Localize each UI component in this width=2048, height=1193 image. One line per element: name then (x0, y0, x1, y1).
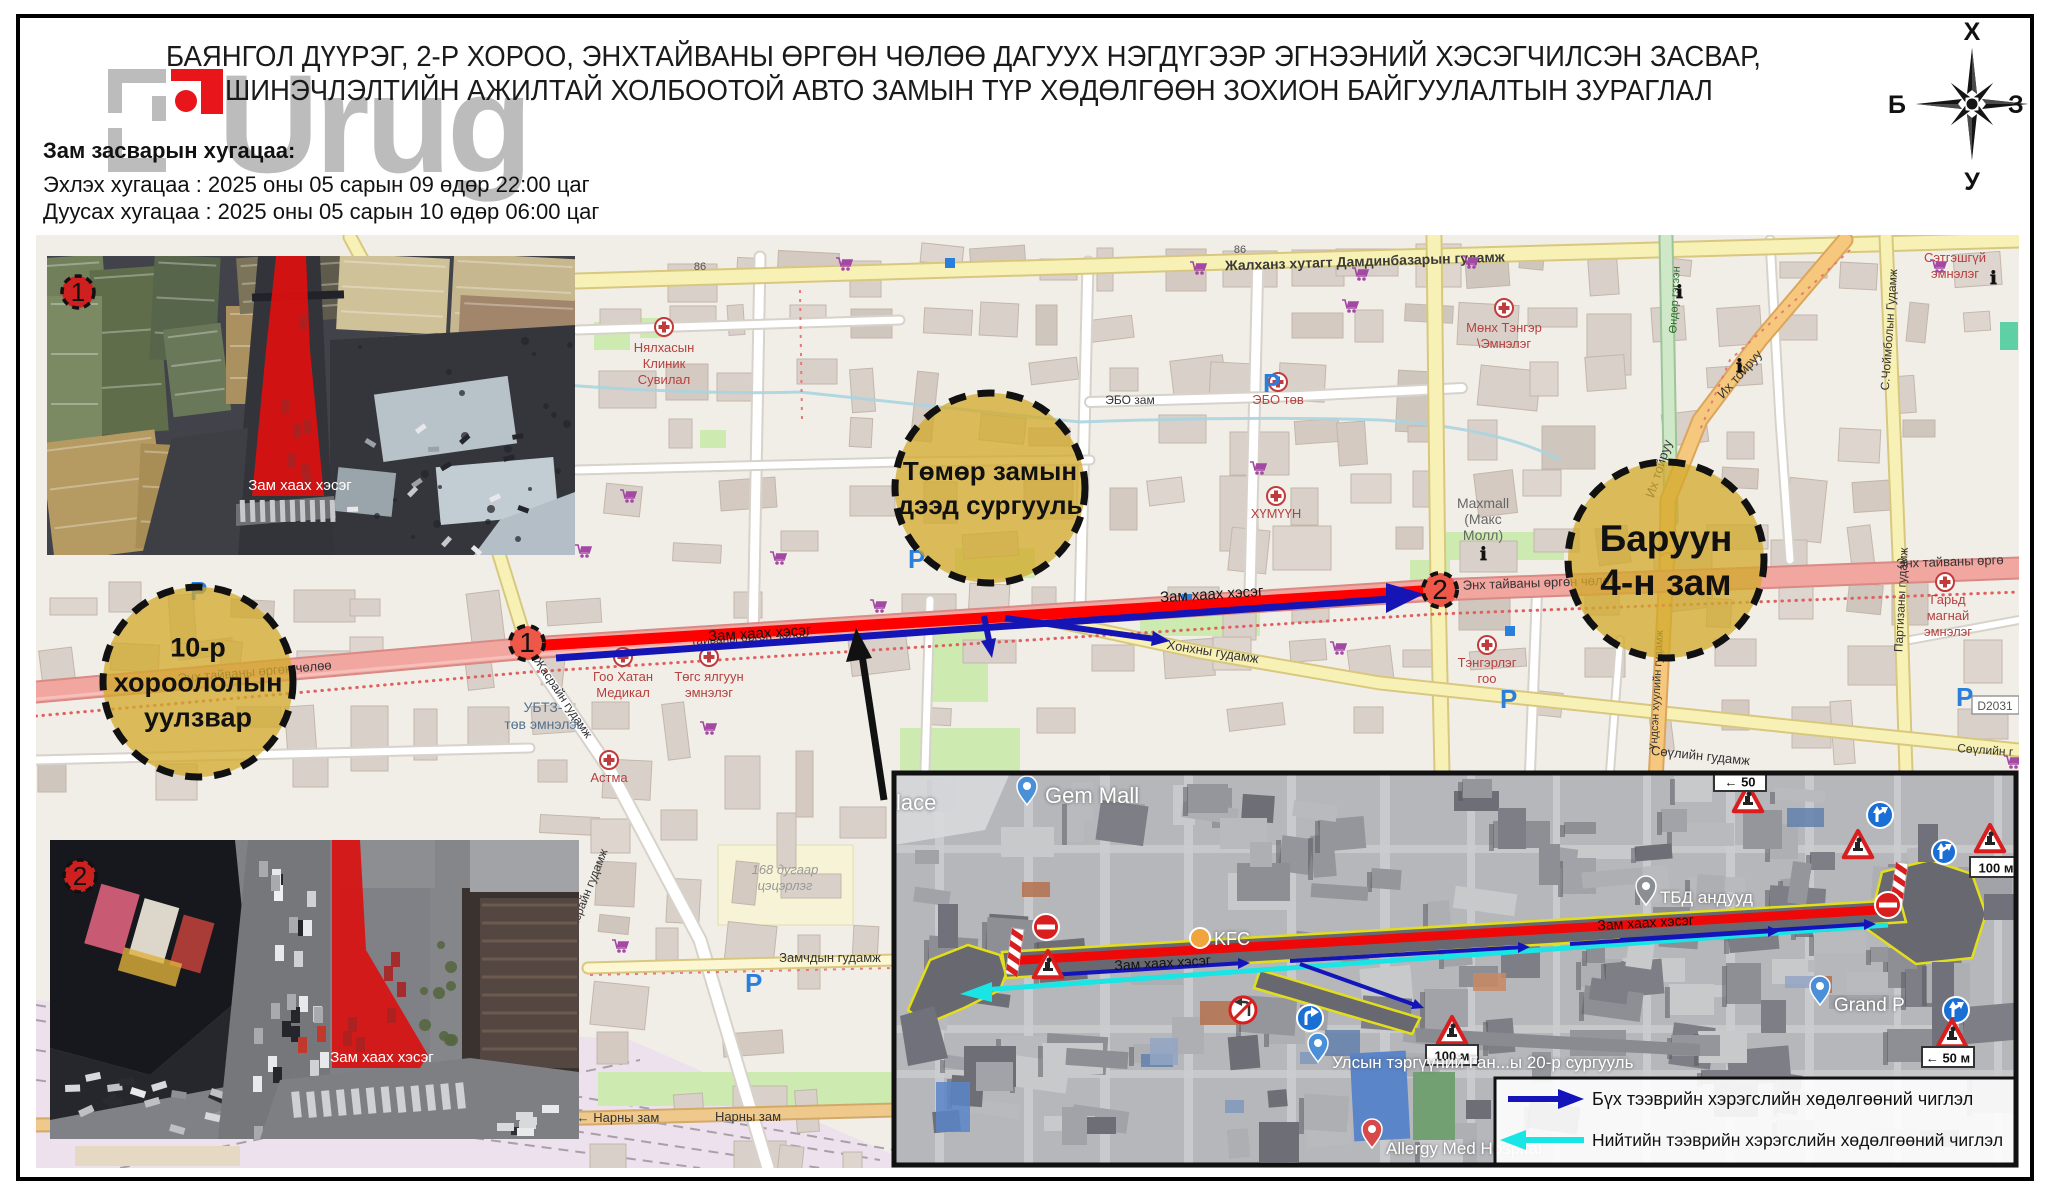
svg-text:Медикал: Медикал (596, 685, 650, 700)
svg-text:P: P (745, 968, 762, 998)
svg-text:ХҮМҮҮН: ХҮМҮҮН (1251, 506, 1302, 521)
svg-text:Нялхасын: Нялхасын (634, 340, 695, 355)
svg-text:D2031: D2031 (1977, 699, 2013, 713)
svg-text:2: 2 (73, 861, 87, 891)
svg-text:(Макс: (Макс (1464, 511, 1502, 527)
svg-text:\Эмнэлэг: \Эмнэлэг (1477, 336, 1531, 351)
svg-text:KFC: KFC (1214, 929, 1250, 949)
svg-text:P: P (1956, 682, 1973, 712)
svg-text:цэцэрлэг: цэцэрлэг (758, 878, 813, 893)
svg-text:1: 1 (71, 277, 85, 307)
svg-text:ℹ: ℹ (1736, 356, 1743, 376)
svg-text:Клиник: Клиник (643, 356, 686, 371)
svg-text:100 м: 100 м (1979, 861, 2014, 876)
svg-text:4-н зам: 4-н зам (1600, 562, 1731, 603)
svg-text:Бүх тээврийн хэрэгслийн хөдөлг: Бүх тээврийн хэрэгслийн хөдөлгөөний чигл… (1592, 1089, 1973, 1109)
svg-text:← 50: ← 50 (1724, 775, 1755, 790)
svg-text:Зам хаах хэсэг: Зам хаах хэсэг (248, 477, 352, 494)
svg-text:магнай: магнай (1927, 608, 1970, 623)
svg-text:Grand P: Grand P (1834, 995, 1905, 1016)
svg-text:Төмөр замын: Төмөр замын (903, 456, 1077, 486)
svg-text:ℹ: ℹ (1990, 268, 1997, 288)
svg-text:Молл): Молл) (1463, 527, 1503, 543)
svg-text:10-р: 10-р (170, 632, 226, 662)
svg-text:эмнэлэг: эмнэлэг (685, 685, 733, 700)
svg-text:Улсын тэргүүний Ган...ы 20-р с: Улсын тэргүүний Ган...ы 20-р сургууль (1332, 1053, 1634, 1072)
svg-text:ТБД андууд: ТБД андууд (1660, 888, 1753, 907)
svg-text:ℹ: ℹ (1676, 282, 1683, 302)
svg-text:УБТЗ-: УБТЗ- (524, 699, 563, 715)
svg-text:Нарны зам: Нарны зам (715, 1109, 781, 1124)
svg-text:уулзвар: уулзвар (144, 702, 252, 732)
svg-text:Gem Mall: Gem Mall (1045, 783, 1139, 808)
svg-text:төв эмнэлэг: төв эмнэлэг (504, 716, 581, 732)
svg-text:Гоо Хатан: Гоо Хатан (593, 669, 653, 684)
svg-text:Зам хаах хэсэг: Зам хаах хэсэг (330, 1049, 434, 1066)
svg-text:Төгс ялгуун: Төгс ялгуун (674, 669, 743, 684)
svg-text:2: 2 (1432, 574, 1448, 605)
svg-text:эмнэлэг: эмнэлэг (1924, 624, 1972, 639)
svg-text:хороололын: хороололын (114, 667, 283, 697)
svg-text:86: 86 (694, 261, 706, 273)
svg-text:168 дугаар: 168 дугаар (752, 862, 819, 877)
svg-text:← Нарны зам: ← Нарны зам (577, 1110, 660, 1125)
svg-text:1: 1 (519, 627, 535, 658)
svg-text:дээд сургууль: дээд сургууль (898, 490, 1083, 520)
svg-text:гоо: гоо (1478, 671, 1497, 686)
svg-text:P: P (1263, 368, 1280, 398)
svg-text:Мөнх Тэнгэр: Мөнх Тэнгэр (1466, 320, 1542, 335)
svg-text:Астма: Астма (590, 770, 628, 785)
svg-text:Гарьд: Гарьд (1930, 592, 1966, 607)
svg-text:Нийтийн тээврийн хэрэгслийн хө: Нийтийн тээврийн хэрэгслийн хөдөлгөөний … (1592, 1130, 2003, 1150)
svg-text:ЭБО зам: ЭБО зам (1105, 393, 1154, 407)
svg-text:Сувилал: Сувилал (638, 372, 690, 387)
svg-text:Замчдын гудамж: Замчдын гудамж (779, 950, 881, 965)
svg-text:ℹ: ℹ (1480, 544, 1487, 564)
svg-text:86: 86 (1234, 244, 1246, 256)
svg-text:P: P (1500, 684, 1517, 714)
svg-text:Maxmall: Maxmall (1457, 495, 1509, 511)
svg-text:Баруун: Баруун (1600, 518, 1733, 559)
svg-text:lace: lace (896, 790, 936, 815)
svg-text:← 50 м: ← 50 м (1926, 1051, 1970, 1066)
svg-text:Тэнгэрлэг: Тэнгэрлэг (1458, 655, 1517, 670)
